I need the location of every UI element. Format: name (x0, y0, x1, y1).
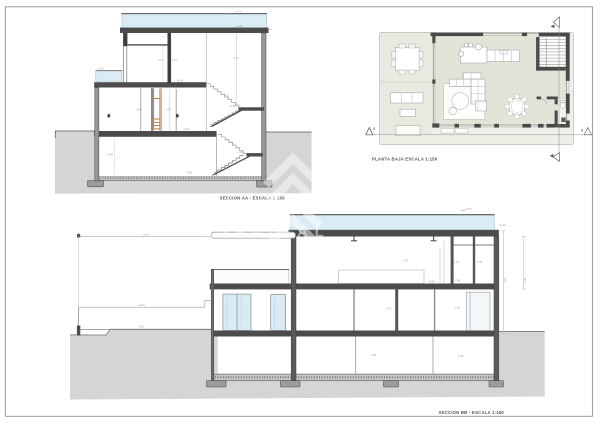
svg-text:2.70: 2.70 (386, 307, 392, 311)
svg-text:+6.70: +6.70 (235, 10, 242, 14)
svg-text:1.36: 1.36 (454, 260, 460, 264)
svg-text:2.70: 2.70 (234, 56, 240, 60)
svg-text:+6.10: +6.10 (143, 232, 150, 236)
svg-text:+6.40: +6.40 (499, 223, 506, 227)
svg-text:+2.68: +2.68 (177, 79, 184, 83)
svg-text:-1.35: -1.35 (237, 150, 243, 154)
svg-text:-0.30: -0.30 (138, 325, 144, 329)
svg-text:SECCION BB - ESCALA 1:150: SECCION BB - ESCALA 1:150 (439, 410, 505, 415)
svg-text:+0.00: +0.00 (183, 127, 190, 131)
svg-text:4.45: 4.45 (523, 277, 527, 283)
svg-text:-2.48: -2.48 (107, 152, 113, 156)
svg-text:2.70: 2.70 (403, 259, 409, 263)
svg-text:3.08: 3.08 (223, 92, 230, 99)
svg-text:2.68: 2.68 (455, 278, 461, 282)
svg-text:B: B (373, 127, 375, 131)
svg-text:2.48: 2.48 (137, 108, 143, 112)
svg-text:2.70: 2.70 (158, 58, 164, 62)
svg-text:ESPACIAL: ESPACIAL (202, 225, 330, 241)
svg-text:+6.70: +6.70 (465, 207, 472, 211)
svg-text:-2.68: -2.68 (370, 353, 376, 357)
svg-text:+0.00: +0.00 (138, 303, 145, 307)
svg-text:-2.68: -2.68 (186, 170, 192, 174)
svg-text:2.70: 2.70 (172, 58, 178, 62)
svg-text:+6.40: +6.40 (236, 24, 243, 28)
svg-text:7.16: 7.16 (503, 277, 507, 283)
svg-text:B: B (581, 128, 583, 132)
svg-text:2.40: 2.40 (477, 260, 483, 264)
svg-text:+3.20: +3.20 (97, 67, 104, 71)
svg-text:+1.35: +1.35 (229, 104, 236, 108)
svg-text:2.68: 2.68 (458, 354, 464, 358)
svg-text:2.70: 2.70 (166, 108, 172, 112)
svg-text:PLANTA BAJA ESCALA 1:150: PLANTA BAJA ESCALA 1:150 (372, 156, 438, 161)
svg-text:2.25: 2.25 (455, 306, 461, 310)
svg-text:+2.68: +2.68 (428, 279, 435, 283)
